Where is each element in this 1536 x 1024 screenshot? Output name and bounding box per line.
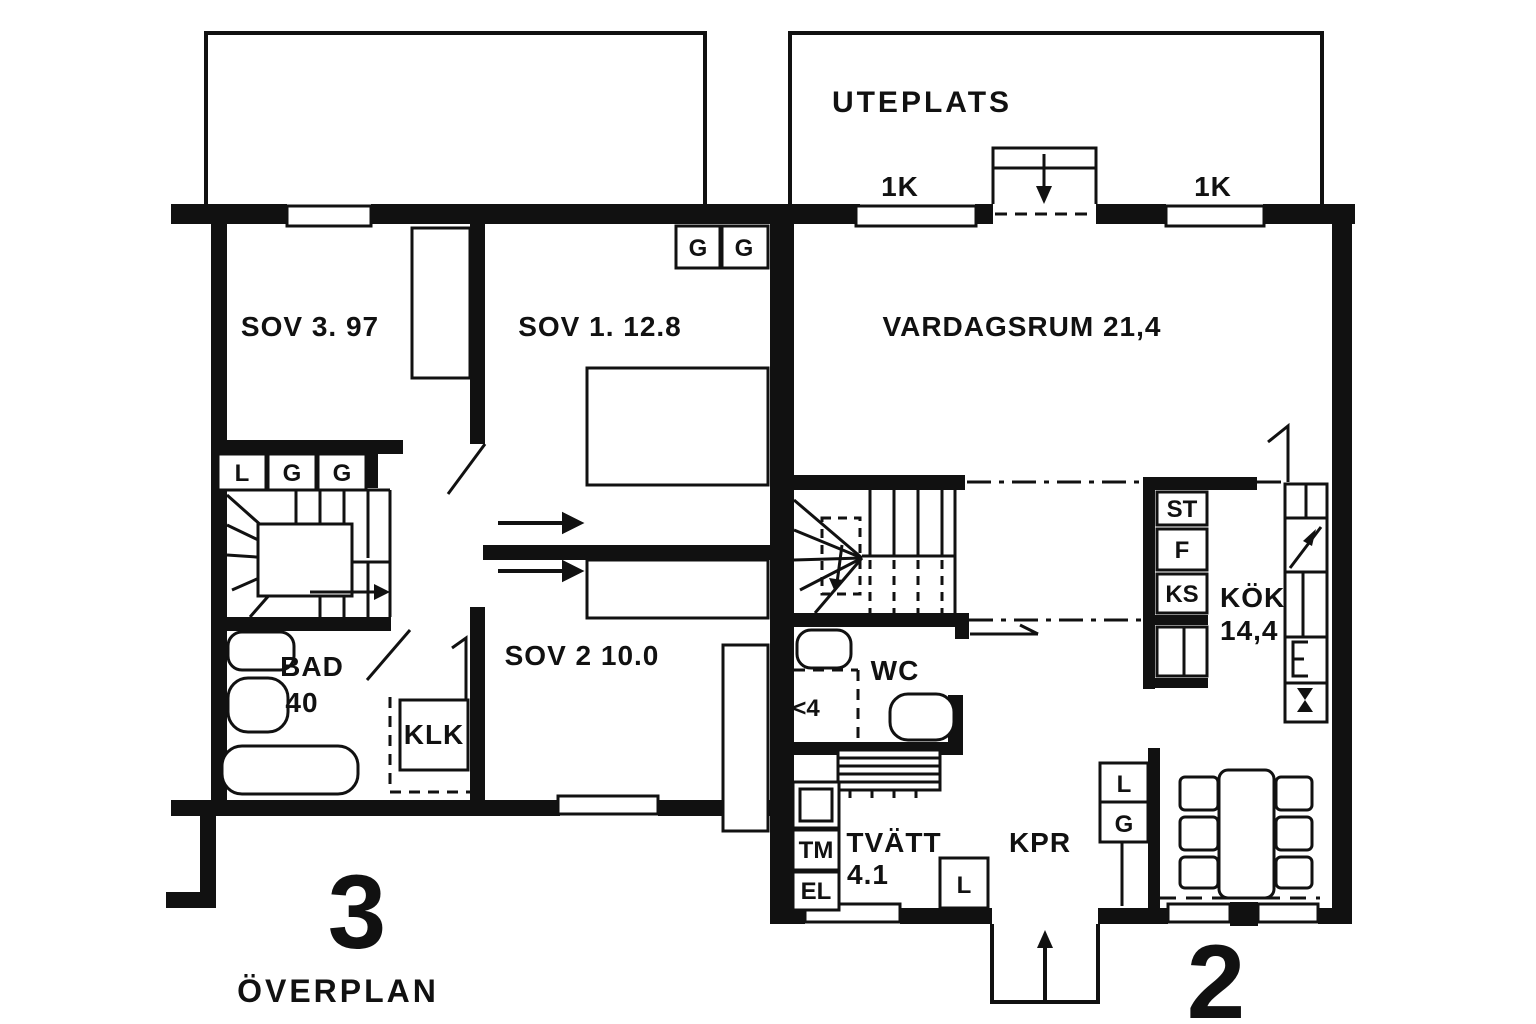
closet-label-g1: G	[283, 460, 302, 487]
entrance-arrow	[1037, 930, 1053, 948]
room-label-sov2: SOV 2 10.0	[505, 640, 660, 671]
balcony-outline	[206, 33, 705, 204]
closet-label-kpr-g: G	[1115, 811, 1134, 838]
dining-furniture	[1180, 770, 1312, 898]
stairs-right	[794, 490, 955, 613]
terrace-label: UTEPLATS	[832, 86, 1012, 119]
room-label-kpr: KPR	[1009, 827, 1071, 858]
closet-label-hall-l: L	[957, 872, 972, 899]
floor-plan-canvas: UTEPLATS 1K 1K VARDAGSRUM 21,4 SOV 3. 97…	[0, 0, 1536, 1024]
terrace-door-arrow	[1036, 186, 1052, 204]
floor-plan-page: UTEPLATS 1K 1K VARDAGSRUM 21,4 SOV 3. 97…	[0, 0, 1536, 1024]
floor-label: ÖVERPLAN	[237, 973, 439, 1009]
kitchen-unit-st: ST	[1167, 496, 1198, 523]
terrace-door	[993, 148, 1096, 214]
stairs-left-arrow	[374, 584, 390, 600]
laundry-unit-el: EL	[801, 878, 832, 905]
laundry-unit-tm: TM	[799, 837, 834, 864]
wardrobe-label-g1: G	[689, 235, 708, 262]
unit-number-left: 3	[328, 854, 386, 971]
kitchen-unit-f: F	[1175, 537, 1190, 564]
closet-label-l: L	[235, 460, 250, 487]
wc-marker: <4	[792, 695, 820, 722]
room-label-kok-area: 14,4	[1220, 615, 1279, 646]
unit-number-right: 2	[1187, 924, 1245, 1024]
room-label-wc: WC	[871, 655, 920, 686]
room-label-vardagsrum: VARDAGSRUM 21,4	[883, 311, 1162, 342]
room-label-kok: KÖK	[1220, 582, 1285, 613]
closet-label-kpr-l: L	[1117, 771, 1132, 798]
room-label-bad: BAD	[280, 651, 344, 682]
room-label-sov3: SOV 3. 97	[241, 311, 379, 342]
kitchen-unit-ks: KS	[1165, 581, 1198, 608]
room-label-bad-area: 40	[285, 687, 318, 718]
stairs-left	[227, 490, 390, 617]
closet-label-g2: G	[333, 460, 352, 487]
room-label-tvatt: TVÄTT	[846, 827, 941, 858]
wc-fixtures	[794, 630, 954, 742]
room-label-tvatt-area: 4.1	[847, 859, 889, 890]
window-label-1k-2: 1K	[1194, 171, 1232, 202]
wardrobe-label-g2: G	[735, 235, 754, 262]
room-label-sov1: SOV 1. 12.8	[518, 311, 682, 342]
room-label-klk: KLK	[404, 719, 465, 750]
window-label-1k-1: 1K	[881, 171, 919, 202]
